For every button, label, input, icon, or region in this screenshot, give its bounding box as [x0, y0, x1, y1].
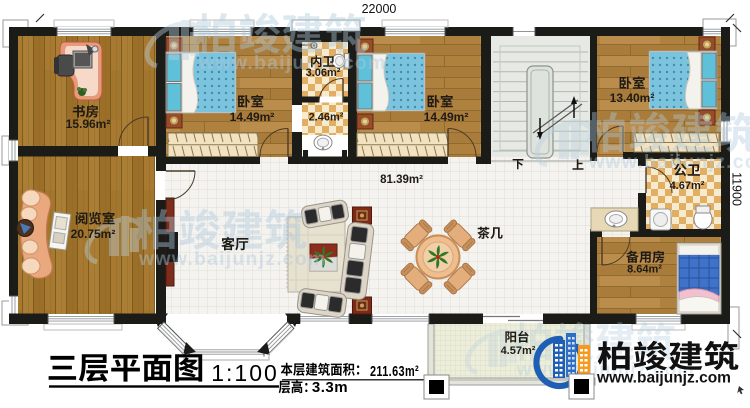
svg-text:3.06m²: 3.06m² — [306, 67, 341, 79]
svg-text:3.3m: 3.3m — [312, 379, 348, 396]
svg-text:4.67m²: 4.67m² — [670, 180, 705, 192]
svg-text:www.baijunjz.com: www.baijunjz.com — [588, 151, 750, 173]
svg-text:2.46m²: 2.46m² — [309, 112, 344, 124]
svg-text:8.64m²: 8.64m² — [627, 264, 662, 276]
svg-text:14.49m²: 14.49m² — [424, 110, 469, 124]
svg-text:1:100: 1:100 — [211, 360, 279, 386]
svg-text:www.baijunjz.com: www.baijunjz.com — [198, 52, 387, 74]
svg-text:15.96m²: 15.96m² — [66, 117, 111, 131]
svg-text:211.63m²: 211.63m² — [370, 363, 419, 380]
svg-text:4.57m²: 4.57m² — [501, 345, 536, 357]
svg-text:81.39m²: 81.39m² — [380, 174, 423, 186]
svg-text:20.75m²: 20.75m² — [71, 227, 116, 241]
svg-text:13.40m²: 13.40m² — [610, 91, 655, 105]
svg-text:22000: 22000 — [362, 2, 397, 16]
svg-text:14.49m²: 14.49m² — [230, 110, 275, 124]
svg-text:www.baijunjz.com: www.baijunjz.com — [596, 370, 731, 387]
svg-text:11900: 11900 — [730, 172, 744, 206]
svg-text:www.baijunjz.com: www.baijunjz.com — [138, 248, 327, 270]
